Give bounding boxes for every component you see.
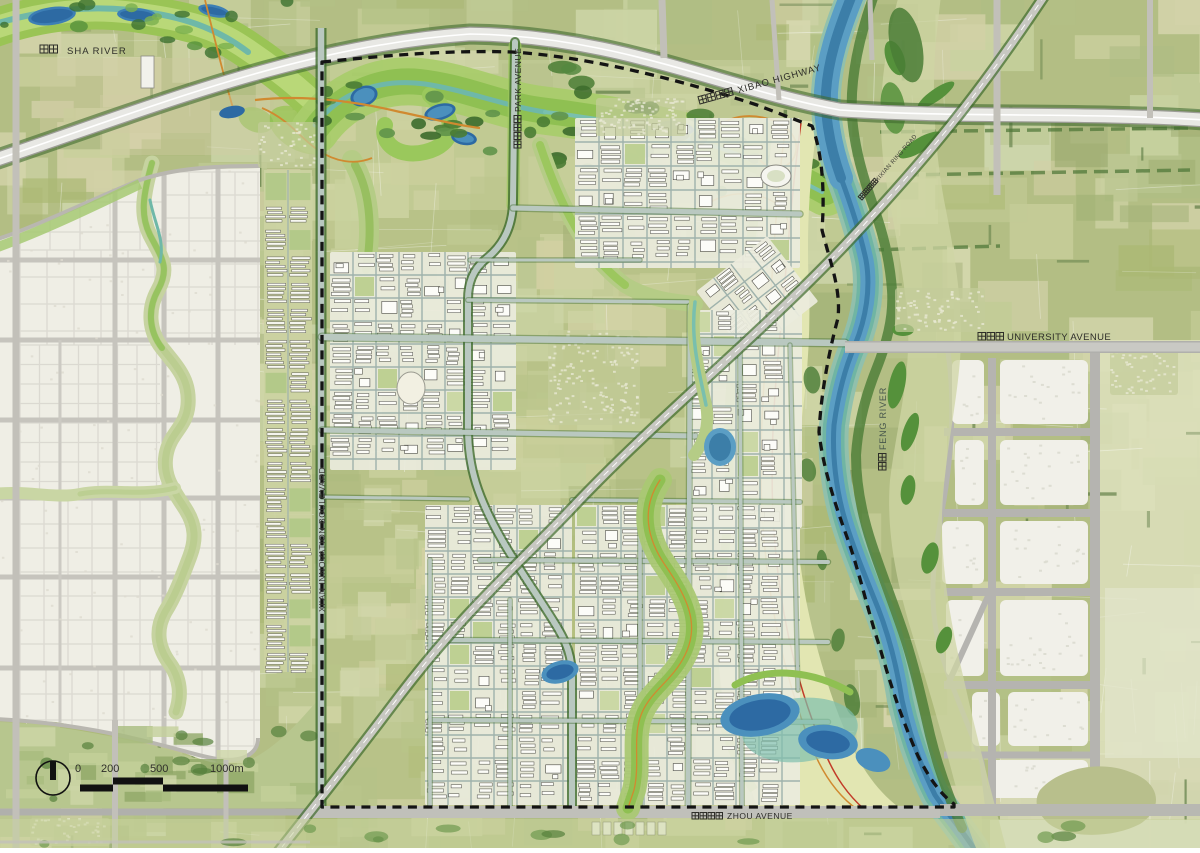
svg-text:PARK AVENUE: PARK AVENUE [513, 48, 523, 112]
svg-text:200: 200 [101, 763, 119, 775]
svg-text:SHA RIVER: SHA RIVER [67, 46, 127, 57]
svg-text:FENG RIVER: FENG RIVER [878, 387, 888, 450]
svg-text:0: 0 [75, 763, 81, 775]
svg-text:1000m: 1000m [210, 763, 244, 775]
svg-text:500: 500 [150, 763, 168, 775]
svg-text:XI'AN INNOVATION BOULEVARD: XI'AN INNOVATION BOULEVARD [317, 467, 327, 612]
svg-text:ZHOU AVENUE: ZHOU AVENUE [727, 811, 793, 821]
svg-text:UNIVERSITY AVENUE: UNIVERSITY AVENUE [1007, 332, 1111, 343]
